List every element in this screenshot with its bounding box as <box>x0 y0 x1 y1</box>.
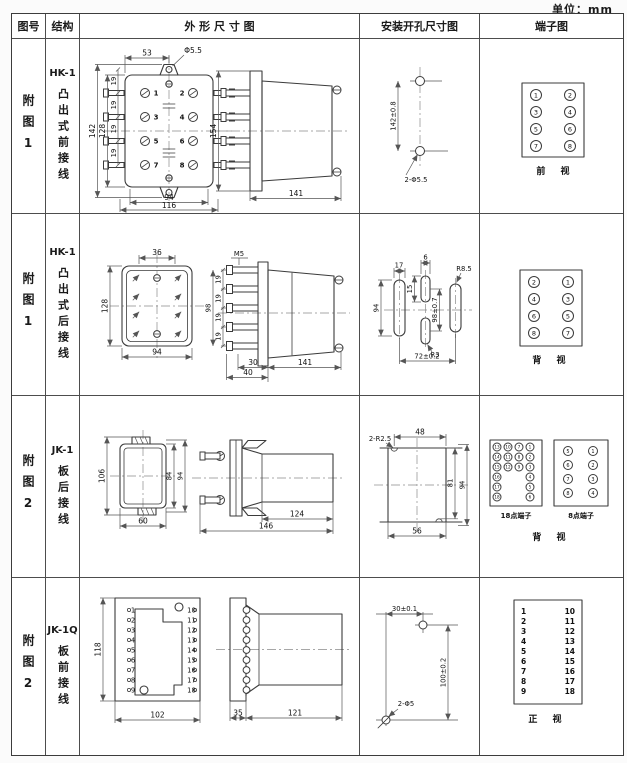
model-label: HK-1 <box>49 247 75 258</box>
dim-label: 141 <box>289 189 304 198</box>
pin-number: 8 <box>131 676 135 684</box>
row3-install-cell: 2-R2.5 48 81 94 56 <box>360 396 480 578</box>
jk1q-install-drawing: 30±0.1 100±0.2 2-Φ5 <box>360 578 479 754</box>
dim-label: 116 <box>162 201 177 210</box>
pin-number: 2 <box>180 90 185 98</box>
structure-label: 凸出式前接线 <box>55 88 71 184</box>
dim-label: 19 <box>215 313 223 322</box>
terminal-number: 10 <box>505 445 511 450</box>
dim-label: 30±0.1 <box>392 605 417 613</box>
view-label: 正 视 <box>528 713 567 725</box>
dim-label: 19 <box>110 101 118 110</box>
dim-label: 48 <box>415 428 425 437</box>
hk1-rear-install-drawing: 17 6 15 94 98±0.7 R8.5 R3 72±0.2 <box>360 214 479 395</box>
pin-number: 1 <box>131 606 135 614</box>
side-view-dimensions: 124 146 <box>200 502 333 534</box>
dim-label: 36 <box>152 248 162 257</box>
pin-number: 16 <box>187 666 196 674</box>
front-view-body: 1 2 3 4 5 6 7 8 9 10 11 12 13 14 15 16 1 <box>115 598 200 701</box>
terminal-number: 15 <box>565 657 575 666</box>
dim-label: 30 <box>248 358 258 367</box>
dim-label: 19 <box>110 125 118 134</box>
dim-label: 154 <box>209 124 218 139</box>
dim-label: 128 <box>98 124 107 139</box>
terminal-number: 2 <box>591 463 594 469</box>
model-label: HK-1 <box>49 68 75 79</box>
row2-install-cell: 17 6 15 94 98±0.7 R8.5 R3 72±0.2 <box>360 214 480 396</box>
dim-label: 142±0.8 <box>390 101 398 130</box>
dim-label: 72±0.2 <box>414 353 439 361</box>
structure-label: 凸出式后接线 <box>55 267 71 363</box>
header-outline: 外 形 尺 寸 图 <box>80 14 360 39</box>
dim-label: 84 <box>166 472 174 481</box>
row4-outline-cell: 1 2 3 4 5 6 7 8 9 10 11 12 13 14 15 16 1 <box>80 578 360 755</box>
terminal-number: 4 <box>532 295 536 303</box>
terminal-number: 7 <box>534 142 538 150</box>
terminal-number: 15 <box>494 465 500 470</box>
fig-label: 附图2 <box>20 454 37 519</box>
terminal-number: 6 <box>568 125 572 133</box>
terminal-number: 10 <box>565 607 575 616</box>
terminal-number: 6 <box>521 657 526 666</box>
dim-label: 2-Φ5.5 <box>405 176 428 184</box>
structure-label: 板后接线 <box>55 465 71 529</box>
model-label: JK-1Q <box>47 625 77 636</box>
terminal-number: 9 <box>521 687 526 696</box>
view-label: 前 视 <box>536 165 575 177</box>
terminal-number: 2 <box>568 91 572 99</box>
terminal-number: 16 <box>565 667 575 676</box>
fig-label: 附图1 <box>20 94 37 159</box>
terminal-number: 4 <box>521 637 526 646</box>
dim-label: 142 <box>88 124 97 139</box>
terminal-number: 3 <box>566 295 570 303</box>
pin-number: 17 <box>187 676 196 684</box>
dim-label: 15 <box>406 285 414 294</box>
dim-label: 118 <box>94 642 103 657</box>
terminal-number: 7 <box>566 329 570 337</box>
dim-label: 98±0.7 <box>431 297 439 322</box>
jk1-outline-drawing: 106 84 94 60 <box>80 396 359 577</box>
terminal-number: 3 <box>591 477 594 483</box>
row4-terminal-cell: 1 2 3 4 5 6 7 8 9 10 11 12 13 14 15 16 1… <box>480 578 623 755</box>
dim-label: 19 <box>215 332 223 341</box>
pin-number: 5 <box>154 138 159 146</box>
drawing-sheet: 单位：mm 图号 结构 外 形 尺 寸 图 安装开孔尺寸图 端子图 附图1 HK… <box>0 0 627 763</box>
pin-number: 11 <box>187 616 196 624</box>
terminal-number: 5 <box>566 449 569 455</box>
terminal-number: 5 <box>566 312 570 320</box>
view-label: 背 视 <box>532 354 571 366</box>
terminal-number: 3 <box>534 108 538 116</box>
terminal-number: 18 <box>494 495 500 500</box>
side-view-body <box>216 598 352 701</box>
pin-number: 15 <box>187 656 196 664</box>
terminal-number: 4 <box>591 491 594 497</box>
row1-fig-no: 附图1 <box>12 39 46 214</box>
terminal-number: 3 <box>529 465 532 470</box>
terminal-number: 5 <box>521 647 526 656</box>
terminal-group-label: 18点端子 <box>501 511 532 520</box>
dim-label: 60 <box>138 517 148 526</box>
terminal-number: 14 <box>494 455 500 460</box>
header-install: 安装开孔尺寸图 <box>360 14 480 39</box>
terminal-number: 18 <box>565 687 575 696</box>
dim-label: 19 <box>215 275 223 284</box>
hk1-front-outline-drawing: 1 2 3 4 5 6 7 8 53 Φ5.5 142 <box>80 39 359 213</box>
front-view-dimensions: 36 128 94 <box>101 248 193 360</box>
hk1-rear-outline-drawing: 36 128 94 <box>80 214 359 395</box>
terminal-number: 2 <box>529 455 532 460</box>
pin-number: 3 <box>131 626 135 634</box>
dim-label: Φ5.5 <box>184 46 202 55</box>
model-label: JK-1 <box>52 445 74 456</box>
terminal-number: 4 <box>529 475 532 480</box>
dim-label: 2-R2.5 <box>369 435 391 443</box>
terminal-number: 12 <box>565 627 575 636</box>
terminal-number: 1 <box>566 278 570 286</box>
row4-install-cell: 30±0.1 100±0.2 2-Φ5 <box>360 578 480 755</box>
dim-label: 141 <box>298 358 313 367</box>
row3-terminal-cell: 13 14 15 16 17 18 10 11 12 7 8 9 <box>480 396 623 578</box>
pin-number: 8 <box>180 162 185 170</box>
row1-outline-cell: 1 2 3 4 5 6 7 8 53 Φ5.5 142 <box>80 39 360 214</box>
dim-label: 94 <box>373 304 381 313</box>
dim-label: 121 <box>288 709 303 718</box>
terminal-number: 16 <box>494 475 500 480</box>
terminal-number: 8 <box>568 142 572 150</box>
pin-number: 4 <box>131 636 135 644</box>
terminal-group-label: 8点端子 <box>568 511 594 520</box>
row1-structure: HK-1 凸出式前接线 <box>46 39 80 214</box>
row3-fig-no: 附图2 <box>12 396 46 578</box>
dim-label: 146 <box>259 522 274 531</box>
pin-number: 6 <box>131 656 135 664</box>
terminal-number: 12 <box>505 465 511 470</box>
terminal-number: 11 <box>505 455 511 460</box>
pin-number: 12 <box>187 626 196 634</box>
jk1q-terminal-diagram: 1 2 3 4 5 6 7 8 9 10 11 12 13 14 15 16 1… <box>480 578 622 754</box>
jk1q-outline-drawing: 1 2 3 4 5 6 7 8 9 10 11 12 13 14 15 16 1 <box>80 578 359 754</box>
terminal-number: 13 <box>494 445 500 450</box>
terminal-number: 8 <box>532 329 536 337</box>
jk1-install-drawing: 2-R2.5 48 81 94 56 <box>360 396 479 577</box>
hk1-rear-terminal-diagram: 2 1 4 3 6 5 8 7 背 视 <box>480 214 622 395</box>
terminal-number: 8 <box>566 491 569 497</box>
pin-number: 18 <box>187 686 196 694</box>
terminal-number: 1 <box>591 449 594 455</box>
pin-number: 2 <box>131 616 135 624</box>
dim-label: 19 <box>215 294 223 303</box>
dim-label: 56 <box>412 527 422 536</box>
terminal-number: 8 <box>521 677 526 686</box>
side-view-dimensions: M5 19 19 19 19 98 3 <box>205 250 342 382</box>
terminal-number: 13 <box>565 637 575 646</box>
view-label: 背 视 <box>532 531 571 543</box>
dim-label: 100±0.2 <box>440 658 448 687</box>
terminal-number: 7 <box>566 477 569 483</box>
row4-fig-no: 附图2 <box>12 578 46 755</box>
pin-number: 7 <box>131 666 135 674</box>
terminal-number: 6 <box>532 312 536 320</box>
dim-label: 124 <box>290 510 305 519</box>
dim-label: 19 <box>110 77 118 86</box>
terminal-number: 1 <box>529 445 532 450</box>
terminal-number: 9 <box>518 465 521 470</box>
dim-label: 102 <box>150 711 165 720</box>
row2-structure: HK-1 凸出式后接线 <box>46 214 80 396</box>
dim-label: 81 <box>447 479 455 488</box>
dim-label: 35 <box>233 709 243 718</box>
dim-label: 17 <box>395 262 404 270</box>
header-structure: 结构 <box>46 14 80 39</box>
terminal-number: 5 <box>534 125 538 133</box>
side-view-body <box>218 262 350 366</box>
terminal-number: 14 <box>565 647 575 656</box>
dim-label: 94 <box>152 348 162 357</box>
pin-number: 9 <box>131 686 135 694</box>
row3-structure: JK-1 板后接线 <box>46 396 80 578</box>
row2-outline-cell: 36 128 94 <box>80 214 360 396</box>
pin-number: 5 <box>131 646 135 654</box>
terminal-number: 11 <box>565 617 575 626</box>
terminal-number: 6 <box>566 463 569 469</box>
hk1-front-install-drawing: 142±0.8 2-Φ5.5 <box>360 39 479 213</box>
terminal-number: 17 <box>565 677 575 686</box>
dim-label: 6 <box>423 254 427 262</box>
front-view-dimensions: 118 102 <box>94 598 201 723</box>
dim-label: R8.5 <box>456 265 472 273</box>
dim-label: M5 <box>234 250 244 258</box>
header-fig: 图号 <box>12 14 46 39</box>
terminal-number: 17 <box>494 485 500 490</box>
terminal-number: 4 <box>568 108 572 116</box>
row2-fig-no: 附图1 <box>12 214 46 396</box>
dim-label: 94 <box>177 472 185 481</box>
dim-label: 2-Φ5 <box>398 700 414 708</box>
structure-label: 板前接线 <box>55 645 71 709</box>
dim-label: 40 <box>243 368 253 377</box>
hk1-front-terminal-diagram: 1 2 3 4 5 6 7 8 前 视 <box>480 39 622 213</box>
row3-outline-cell: 106 84 94 60 <box>80 396 360 578</box>
front-view-body <box>110 254 206 358</box>
row4-structure: JK-1Q 板前接线 <box>46 578 80 755</box>
terminal-number: 1 <box>521 607 526 616</box>
spec-table: 图号 结构 外 形 尺 寸 图 安装开孔尺寸图 端子图 附图1 HK-1 凸出式… <box>11 13 624 756</box>
dim-label: 98 <box>205 304 213 313</box>
terminal-number: 1 <box>534 91 538 99</box>
pin-number: 7 <box>154 162 159 170</box>
row1-terminal-cell: 1 2 3 4 5 6 7 8 前 视 <box>480 39 623 214</box>
terminal-number: 7 <box>518 445 521 450</box>
dim-label: 53 <box>142 49 152 58</box>
side-view-body <box>192 440 342 516</box>
fig-label: 附图1 <box>20 272 37 337</box>
fig-label: 附图2 <box>20 634 37 699</box>
dim-label: 94 <box>459 481 467 490</box>
dim-label: 106 <box>98 469 107 484</box>
terminal-number: 7 <box>521 667 526 676</box>
terminal-number: 2 <box>521 617 526 626</box>
pin-number: 3 <box>154 114 159 122</box>
terminal-number: 5 <box>529 485 532 490</box>
dim-label: 128 <box>101 299 110 314</box>
terminal-number: 8 <box>518 455 521 460</box>
terminal-number: 3 <box>521 627 526 636</box>
terminal-number: 6 <box>529 495 532 500</box>
row1-install-cell: 142±0.8 2-Φ5.5 <box>360 39 480 214</box>
pin-number: 13 <box>187 636 196 644</box>
pin-number: 14 <box>187 646 196 654</box>
pin-number: 10 <box>187 606 196 614</box>
pin-number: 4 <box>180 114 185 122</box>
jk1-terminal-diagram: 13 14 15 16 17 18 10 11 12 7 8 9 <box>480 396 622 577</box>
terminal-number: 2 <box>532 278 536 286</box>
pin-number: 1 <box>154 90 159 98</box>
header-terminal: 端子图 <box>480 14 623 39</box>
row2-terminal-cell: 2 1 4 3 6 5 8 7 背 视 <box>480 214 623 396</box>
dim-label: 19 <box>110 149 118 158</box>
pin-number: 6 <box>180 138 185 146</box>
